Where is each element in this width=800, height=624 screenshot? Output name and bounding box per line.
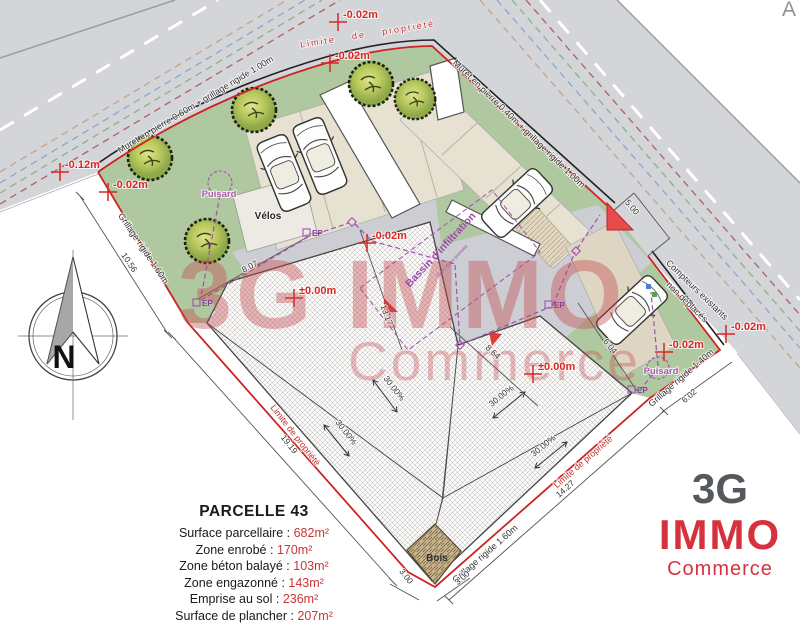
parcel-row-value: 236m² (283, 592, 318, 606)
elevation-mark: ±0.00m (538, 361, 575, 373)
elevation-mark: -0.02m (335, 50, 370, 62)
elevation-mark: -0.02m (372, 230, 407, 242)
label-ep-3: EP (637, 386, 648, 395)
meter-icon (646, 284, 651, 289)
parcel-row: Surface parcellaire : 682m² (128, 525, 380, 542)
parcel-row-value: 103m² (293, 559, 328, 573)
label-velos: Vélos (255, 211, 282, 222)
elevation-mark: ±0.00m (299, 285, 336, 297)
parcel-info: PARCELLE 43 Surface parcellaire : 682m² … (128, 503, 380, 624)
parcel-row-label: Surface de plancher : (175, 609, 297, 623)
parcel-row-label: Zone engazonné : (184, 576, 288, 590)
parcel-row-label: Zone enrobé : (196, 543, 277, 557)
label-puisard-right: Puisard (644, 366, 679, 377)
label-ep-4: EP (554, 301, 565, 310)
label-ep-1: EP (202, 299, 213, 308)
logo-immo: IMMO (640, 514, 800, 556)
elevation-mark: -0.02m (731, 321, 766, 333)
parcel-row-label: Zone béton balayé : (179, 559, 293, 573)
compass-north-letter: N (52, 339, 75, 375)
parcel-row-value: 682m² (294, 526, 329, 540)
parcel-row-label: Emprise au sol : (190, 592, 283, 606)
parcel-row: Zone engazonné : 143m² (128, 575, 380, 592)
parcel-title: PARCELLE 43 (128, 503, 380, 521)
parcel-row: Zone enrobé : 170m² (128, 542, 380, 559)
elevation-mark: -0.02m (113, 179, 148, 191)
elevation-mark: -0.02m (669, 339, 704, 351)
parcel-row: Emprise au sol : 236m² (128, 591, 380, 608)
parcel-row-value: 170m² (277, 543, 312, 557)
parcel-row: Zone béton balayé : 103m² (128, 558, 380, 575)
logo-3g: 3G (640, 468, 800, 510)
agency-logo: 3G IMMO Commerce (640, 468, 800, 579)
corner-letter: A (782, 0, 796, 22)
parcel-row-value: 207m² (297, 609, 332, 623)
label-puisard-left: Puisard (202, 189, 237, 200)
meter-icon (652, 292, 657, 297)
label-ep-2: EP (312, 229, 323, 238)
elevation-mark: -0.02m (343, 9, 378, 21)
label-bois: Bois (426, 553, 448, 564)
parcel-row-value: 143m² (288, 576, 323, 590)
site-plan: 3G IMMO Commerce Limite de propriété Lim… (0, 0, 800, 622)
parcel-row-label: Surface parcellaire : (179, 526, 294, 540)
logo-commerce: Commerce (640, 559, 800, 579)
elevation-mark: -0.12m (65, 159, 100, 171)
